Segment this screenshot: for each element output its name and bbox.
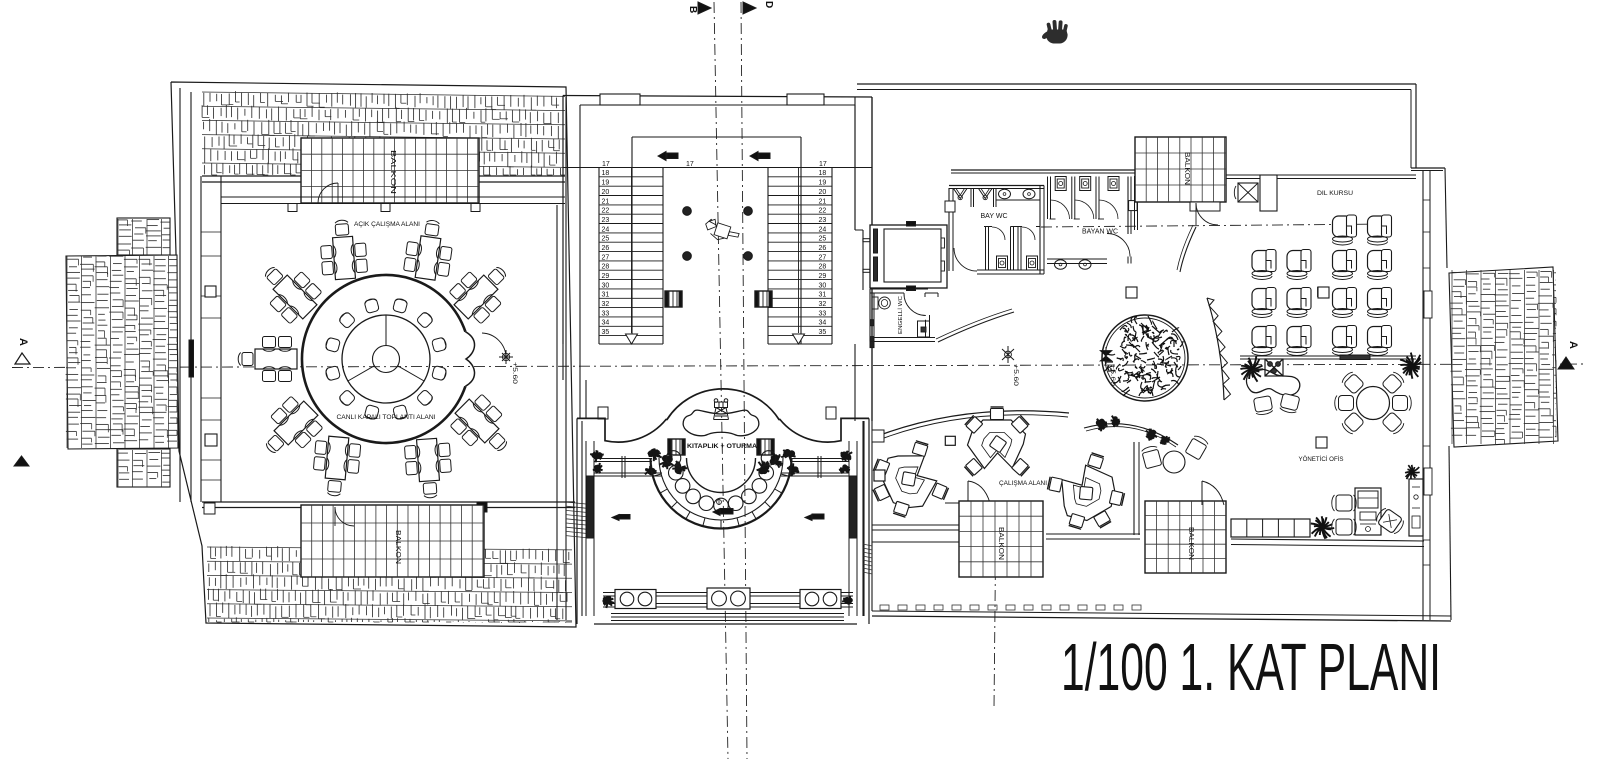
svg-text:25: 25 [819,236,827,243]
svg-text:17: 17 [819,161,827,168]
svg-text:BAY WC: BAY WC [981,213,1008,220]
svg-text:35: 35 [819,329,827,336]
svg-text:31: 31 [602,292,610,299]
svg-text:31: 31 [819,292,827,299]
svg-text:18: 18 [602,170,610,177]
svg-text:BALKON: BALKON [394,530,403,564]
svg-text:A: A [17,338,29,346]
svg-text:18: 18 [819,170,827,177]
svg-text:+5.60: +5.60 [1109,364,1115,387]
svg-text:22: 22 [819,208,827,215]
svg-text:34: 34 [602,320,610,327]
svg-text:BALKON: BALKON [1187,527,1194,560]
svg-text:BALKON: BALKON [389,150,398,194]
svg-text:33: 33 [819,310,827,317]
svg-text:20: 20 [819,189,827,196]
svg-text:19: 19 [602,180,610,187]
svg-text:ÇALIŞMA ALANI: ÇALIŞMA ALANI [999,480,1047,487]
svg-text:27: 27 [819,254,827,261]
svg-text:34: 34 [819,320,827,327]
svg-text:BALKON: BALKON [997,527,1004,560]
svg-text:27: 27 [602,254,610,261]
svg-text:21: 21 [819,198,827,205]
svg-text:1/100 1. KAT PLANI: 1/100 1. KAT PLANI [1061,630,1441,705]
svg-text:KITAPLIK + OTURMA: KITAPLIK + OTURMA [687,443,757,450]
svg-text:32: 32 [602,301,610,308]
svg-text:25: 25 [602,236,610,243]
svg-text:23: 23 [602,217,610,224]
svg-text:17: 17 [686,161,694,168]
svg-text:+5.60: +5.60 [1012,364,1018,387]
svg-text:CANLI KAPALI TOPLANTI ALANI: CANLI KAPALI TOPLANTI ALANI [337,414,436,421]
svg-text:24: 24 [819,226,827,233]
svg-text:D: D [763,1,774,8]
svg-text:28: 28 [602,264,610,271]
svg-text:26: 26 [602,245,610,252]
svg-text:BALKON: BALKON [1183,152,1190,185]
svg-text:BAYAN WC: BAYAN WC [1082,229,1118,236]
svg-text:17: 17 [602,161,610,168]
svg-text:30: 30 [602,282,610,289]
svg-text:20: 20 [602,189,610,196]
svg-text:+5.60: +5.60 [511,362,517,385]
svg-text:B: B [687,6,698,13]
svg-text:YÖNETİCİ OFİS: YÖNETİCİ OFİS [1299,456,1344,463]
svg-text:19: 19 [819,180,827,187]
svg-text:DIL KURSU: DIL KURSU [1317,190,1353,197]
svg-text:29: 29 [602,273,610,280]
svg-text:A: A [1567,341,1579,349]
svg-text:32: 32 [819,301,827,308]
svg-text:ENGELLİ WC: ENGELLİ WC [897,296,904,334]
svg-text:30: 30 [819,282,827,289]
svg-text:33: 33 [602,310,610,317]
svg-text:29: 29 [819,273,827,280]
svg-text:35: 35 [602,329,610,336]
svg-text:23: 23 [819,217,827,224]
svg-text:24: 24 [602,226,610,233]
svg-text:AÇIK ÇALIŞMA ALANI: AÇIK ÇALIŞMA ALANI [354,221,420,228]
svg-text:22: 22 [602,208,610,215]
svg-text:21: 21 [602,198,610,205]
svg-text:26: 26 [819,245,827,252]
svg-text:28: 28 [819,264,827,271]
